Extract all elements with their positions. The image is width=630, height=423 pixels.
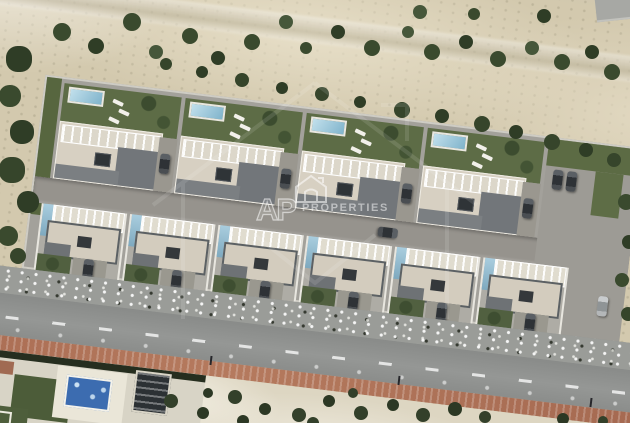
- villa: [298, 236, 392, 315]
- pool-deck: [52, 365, 128, 423]
- villa: [475, 257, 569, 336]
- stairwell-box: [342, 268, 357, 281]
- garden-structure: [0, 409, 12, 423]
- stairwell-box: [430, 279, 445, 292]
- villa: [210, 225, 304, 304]
- stairwell-box: [253, 258, 268, 271]
- villa: [387, 247, 481, 326]
- stairwell-box: [165, 247, 180, 260]
- villa: [122, 214, 216, 293]
- tiled-path: [0, 357, 14, 375]
- background-road: [593, 0, 630, 22]
- stairwell-box: [518, 290, 533, 303]
- villa: [33, 203, 127, 282]
- aerial-render: AP PROPERTIES: [0, 0, 630, 423]
- stairwell-box: [77, 236, 92, 249]
- site-plan-scene: [0, 0, 630, 423]
- communal-pool: [63, 375, 113, 412]
- pergola-structure: [131, 370, 172, 416]
